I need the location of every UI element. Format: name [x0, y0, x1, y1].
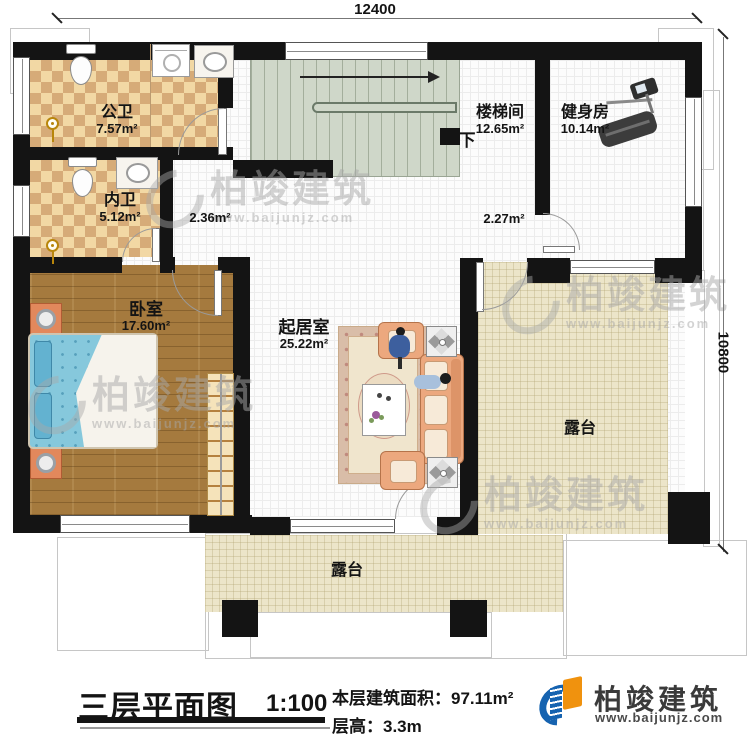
watermark: 柏竣建筑www.baijunjz.com: [422, 474, 648, 536]
pillar: [450, 600, 487, 637]
hall-area-label: 2.36m²: [180, 211, 240, 226]
title-underline: [77, 717, 325, 723]
stair-direction-line: [300, 76, 430, 78]
brand-website: www.baijunjz.com: [595, 710, 723, 725]
window-bedroom-bottom: [60, 515, 190, 533]
window-private-bath: [13, 185, 30, 237]
window-public-bath: [13, 57, 30, 135]
brand-logo-icon: [541, 676, 589, 732]
side-table-lamp: [426, 326, 457, 357]
room-label-bedroom: 卧室17.60m²: [106, 300, 186, 334]
room-label-gym: 健身房10.14m²: [545, 104, 625, 136]
platform-outline-right: [563, 540, 747, 656]
wall-segment: [13, 135, 30, 185]
window-gym-east: [685, 97, 702, 207]
floorplan-canvas: 柏竣建筑www.baijunjz.com 柏竣建筑www.baijunjz.co…: [0, 0, 750, 740]
window-living-south-sliding: [290, 519, 395, 533]
person-icon: [387, 327, 413, 369]
wall-segment: [28, 257, 122, 273]
wall-segment: [13, 515, 60, 533]
dimension-label-top: 12400: [335, 2, 415, 19]
floor-area-text: 本层建筑面积：97.11m²: [332, 684, 513, 709]
wall-segment: [685, 42, 702, 97]
room-label-living: 起居室25.22m²: [264, 318, 344, 352]
stair-railing: [312, 102, 457, 113]
title-underline-thin: [80, 727, 330, 729]
armchair: [380, 451, 425, 490]
pillar: [222, 600, 258, 637]
wall-segment: [535, 60, 550, 215]
coffee-table: [362, 384, 406, 436]
stair-arrow-icon: [428, 71, 440, 83]
nightstand: [30, 303, 62, 335]
window-gym-south: [570, 260, 655, 274]
wall-segment: [250, 517, 290, 535]
nightstand: [30, 447, 62, 479]
sink-icon: [194, 45, 234, 78]
wall-segment: [13, 42, 285, 60]
dimension-line-right: [723, 37, 724, 552]
wall-segment: [13, 42, 30, 57]
watermark: 柏竣建筑www.baijunjz.com: [504, 274, 730, 336]
room-label-terrace-bottom: 露台: [307, 562, 387, 580]
platform-outline-left: [57, 537, 209, 651]
wall-segment: [685, 207, 702, 283]
room-label-terrace-right: 露台: [540, 420, 620, 438]
pillar: [668, 492, 710, 544]
room-label-private-bath: 内卫5.12m²: [80, 192, 160, 224]
dimension-label-right: 10800: [714, 317, 731, 387]
washing-machine-icon: [152, 44, 190, 77]
room-label-public-bath: 公卫7.57m²: [77, 104, 157, 136]
wall-segment: [13, 237, 30, 533]
window-stairwell-top: [285, 42, 428, 60]
plan-scale: 1:100: [266, 690, 327, 718]
person-icon: [414, 368, 450, 394]
wall-lamp-icon: [46, 117, 59, 130]
stair-down-label: 下: [455, 131, 479, 150]
floor-height-text: 层高：3.3m: [332, 712, 422, 737]
watermark: 柏竣建筑www.baijunjz.com: [30, 374, 256, 436]
hall-area-label: 2.27m²: [474, 212, 534, 227]
wall-lamp-icon: [46, 239, 59, 252]
wall-segment: [428, 42, 702, 60]
